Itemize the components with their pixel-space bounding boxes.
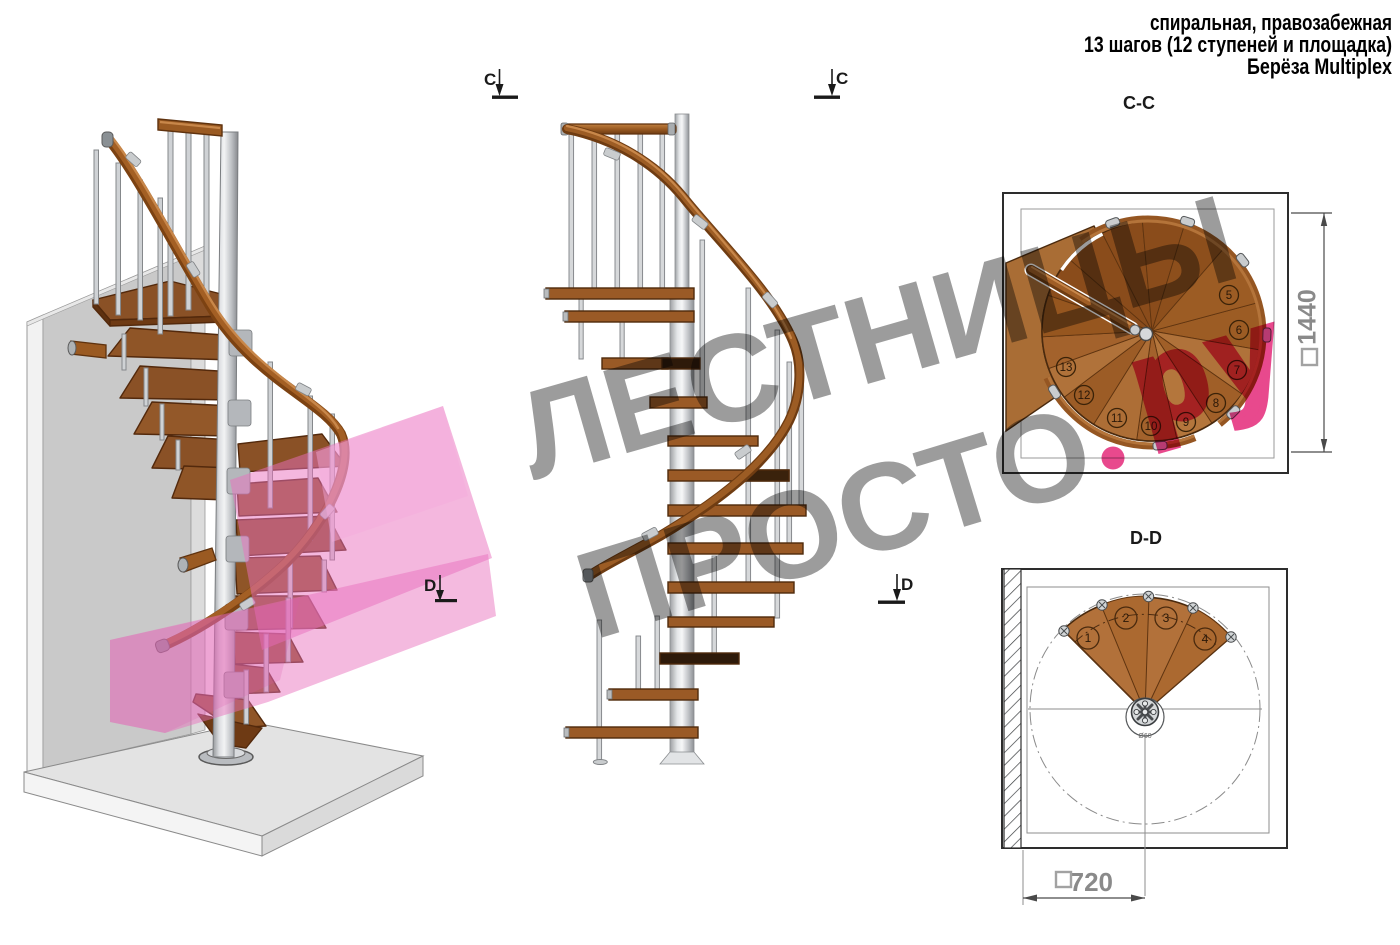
svg-text:D-D: D-D — [1130, 528, 1162, 548]
svg-text:3: 3 — [1163, 611, 1170, 625]
svg-text:2: 2 — [1123, 611, 1130, 625]
svg-text:C-C: C-C — [1123, 93, 1155, 113]
svg-text:D: D — [901, 575, 913, 594]
svg-text:1440: 1440 — [1294, 289, 1322, 345]
svg-text:4: 4 — [1202, 632, 1209, 646]
svg-text:Берёза Multiplex: Берёза Multiplex — [1247, 54, 1393, 79]
svg-text:12: 12 — [1078, 390, 1091, 402]
svg-text:Ø60: Ø60 — [1138, 733, 1151, 740]
svg-text:1: 1 — [1085, 631, 1092, 645]
svg-text:C: C — [484, 70, 496, 89]
svg-text:C: C — [836, 69, 848, 88]
svg-text:11: 11 — [1111, 413, 1123, 425]
svg-text:D: D — [424, 576, 436, 595]
svg-text:13: 13 — [1060, 362, 1073, 374]
svg-text:720: 720 — [1070, 867, 1113, 897]
